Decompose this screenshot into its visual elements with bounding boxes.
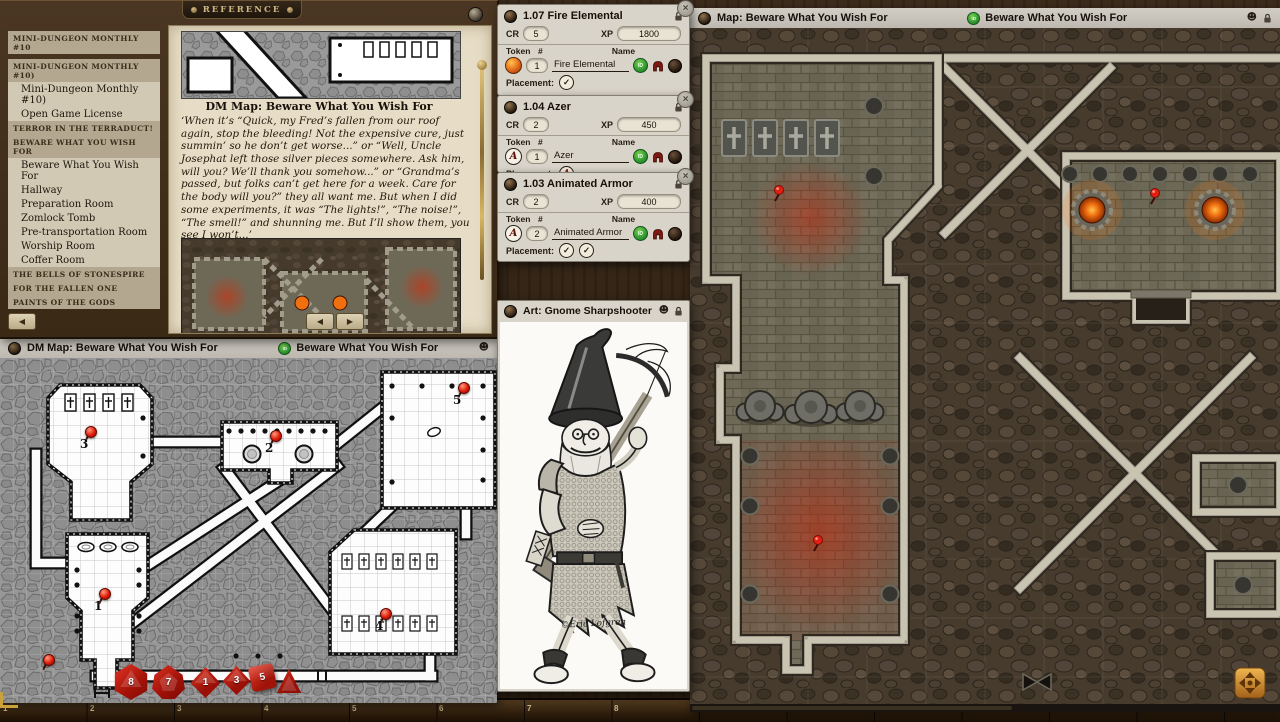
placement-check-icon[interactable]: ✓ (559, 243, 574, 258)
radial-menu-icon[interactable] (504, 10, 517, 23)
id-badge-icon: ID (278, 342, 291, 355)
player-map-shared-name: ID Beware What You Wish For (967, 12, 1127, 25)
radial-menu-icon[interactable] (8, 342, 21, 355)
npc-name-link[interactable]: Fire Elemental (552, 59, 629, 72)
close-icon[interactable]: × (677, 91, 694, 108)
player-map-canvas[interactable] (690, 28, 1280, 712)
close-icon[interactable]: × (677, 0, 694, 17)
token-column-header: Token (506, 46, 538, 56)
altar-statues (737, 391, 884, 427)
xp-field[interactable]: 450 (617, 117, 681, 132)
encounter-window-animated-armor: × 1.03 Animated Armor CR 2 XP 400 Token … (497, 172, 690, 262)
placement-label: Placement: (506, 246, 554, 256)
art-title: Art: Gnome Sharpshooter (523, 305, 652, 317)
player-view-icon[interactable]: ☻ (1247, 13, 1257, 23)
xp-label: XP (601, 120, 613, 130)
npc-name-link[interactable]: Azer (552, 150, 629, 163)
name-column-header: Name (566, 214, 681, 224)
window-knob-icon[interactable] (468, 7, 483, 22)
id-badge-icon[interactable]: ID (633, 58, 648, 73)
stud-icon (191, 7, 197, 13)
index-item[interactable]: Zomlock Tomb (8, 211, 160, 225)
cr-label: CR (506, 29, 519, 39)
index-header[interactable]: Paints of the Gods (8, 295, 160, 309)
radial-menu-icon[interactable] (504, 101, 517, 114)
cr-field[interactable]: 2 (523, 117, 549, 132)
cr-label: CR (506, 197, 519, 207)
placement-label: Placement: (506, 78, 554, 88)
pin-number: 1 (94, 599, 102, 613)
id-badge-icon[interactable]: ID (633, 149, 648, 164)
encounter-title: 1.07 Fire Elemental (523, 10, 623, 22)
art-window: Art: Gnome Sharpshooter ☻ (497, 300, 690, 692)
reference-index-list: Mini-Dungeon Monthly #10 Mini-Dungeon Mo… (8, 31, 160, 309)
id-badge-icon[interactable]: ID (633, 226, 648, 241)
hotkey-slot-label[interactable]: 8 (614, 704, 618, 713)
index-item[interactable]: Coffer Room (8, 253, 160, 267)
desktop-corner-ornament (0, 692, 18, 708)
pin-number: 4 (375, 619, 383, 633)
helmet-icon[interactable] (652, 60, 664, 72)
page-caption[interactable]: DM Map: Beware What You Wish For (169, 100, 469, 113)
d6-die[interactable]: 5 (248, 663, 278, 693)
xp-label: XP (601, 29, 613, 39)
stud-icon (287, 7, 293, 13)
reference-title-plaque[interactable]: REFERENCE (182, 1, 302, 19)
pin-head-icon (43, 654, 55, 666)
shared-name-label: Beware What You Wish For (985, 12, 1127, 24)
fire-elemental-token-icon[interactable] (505, 57, 522, 74)
index-header[interactable]: Beware What You Wish For (8, 135, 160, 158)
count-column-header: # (538, 137, 566, 147)
page-prev-button[interactable]: ◀ (306, 313, 334, 330)
count-field[interactable]: 1 (526, 58, 548, 73)
map-pan-control (1235, 668, 1265, 698)
art-titlebar[interactable]: Art: Gnome Sharpshooter ☻ (498, 301, 689, 321)
xp-field[interactable]: 400 (617, 194, 681, 209)
count-column-header: # (538, 214, 566, 224)
encounter-titlebar[interactable]: 1.07 Fire Elemental (498, 5, 689, 25)
armor-letter-token-icon[interactable]: A (505, 225, 522, 242)
index-item[interactable]: Mini-Dungeon Monthly #10) (8, 82, 160, 107)
hotkey-slot-label[interactable]: 6 (439, 704, 443, 713)
placement-check-icon[interactable]: ✓ (579, 243, 594, 258)
player-view-icon[interactable]: ☻ (659, 306, 669, 316)
count-field[interactable]: 1 (526, 149, 548, 164)
dm-map-title: DM Map: Beware What You Wish For (27, 342, 218, 354)
radial-menu-icon[interactable] (698, 12, 711, 25)
reference-window: REFERENCE Mini-Dungeon Monthly #10 Mini-… (0, 0, 499, 339)
xp-label: XP (601, 197, 613, 207)
page-scroll-rod[interactable] (480, 68, 484, 280)
cr-label: CR (506, 120, 519, 130)
token-column-header: Token (506, 214, 538, 224)
name-column-header: Name (566, 46, 681, 56)
page-body-text: ‘When it’s “Quick, my Fred’s fallen from… (181, 115, 473, 242)
azer-letter-token-icon[interactable]: A (505, 148, 522, 165)
player-map-title: Map: Beware What You Wish For (717, 12, 888, 24)
player-map-titlebar[interactable]: Map: Beware What You Wish For ID Beware … (690, 8, 1280, 29)
art-canvas[interactable]: ©Eric Lofgren (500, 322, 687, 689)
lock-icon[interactable] (1263, 13, 1272, 24)
encounter-titlebar[interactable]: 1.04 Azer (498, 96, 689, 116)
encounter-window-fire-elemental: × 1.07 Fire Elemental CR 5 XP 1800 Token… (497, 4, 690, 96)
token-orb-icon[interactable] (668, 150, 682, 164)
token-orb-icon[interactable] (668, 227, 682, 241)
name-column-header: Name (566, 137, 681, 147)
hotkey-slot-label[interactable]: 2 (90, 704, 94, 713)
hotkey-slot-label[interactable]: 3 (177, 704, 181, 713)
dm-map-window: DM Map: Beware What You Wish For ID Bewa… (0, 338, 497, 703)
dm-map-canvas[interactable] (0, 358, 497, 703)
dm-map-titlebar[interactable]: DM Map: Beware What You Wish For ID Bewa… (0, 338, 497, 359)
hotkey-slot-label[interactable]: 7 (527, 704, 531, 713)
index-header[interactable]: Mini-Dungeon Monthly #10) (8, 59, 160, 82)
index-header[interactable]: Terror in the Terraduct! (8, 121, 160, 135)
radial-menu-icon[interactable] (504, 305, 517, 318)
index-header[interactable]: Mini-Dungeon Monthly #10 (8, 31, 160, 54)
index-item[interactable]: Worship Room (8, 239, 160, 253)
radial-menu-icon[interactable] (504, 178, 517, 191)
fantasy-grounds-desktop: { "labels": {"cr": "CR", "xp": "XP", "to… (0, 0, 1280, 720)
index-item[interactable]: Preparation Room (8, 197, 160, 211)
pin-number: 3 (80, 437, 88, 451)
count-field[interactable]: 2 (526, 226, 548, 241)
index-item[interactable]: Hallway (8, 183, 160, 197)
reference-page: DM Map: Beware What You Wish For ‘When i… (168, 25, 492, 334)
encounter-title: 1.04 Azer (523, 101, 571, 113)
count-column-header: # (538, 46, 566, 56)
dm-map-shared-name: ID Beware What You Wish For (278, 342, 438, 355)
hotkey-slot-label[interactable]: 4 (264, 704, 268, 713)
encounter-titlebar[interactable]: 1.03 Animated Armor (498, 173, 689, 193)
pin-number: 5 (453, 393, 461, 407)
index-header[interactable]: The Bells of Stonespire (8, 267, 160, 281)
token-orb-icon[interactable] (668, 59, 682, 73)
hotkey-slot-label[interactable]: 5 (352, 704, 356, 713)
token-column-header: Token (506, 137, 538, 147)
cr-field[interactable]: 5 (523, 26, 549, 41)
id-badge-icon: ID (967, 12, 980, 25)
index-item[interactable]: Open Game License (8, 107, 160, 121)
reference-title: REFERENCE (203, 5, 282, 15)
encounter-window-azer: × 1.04 Azer CR 2 XP 450 Token # Name A 1… (497, 95, 690, 173)
player-map-window: Map: Beware What You Wish For ID Beware … (690, 8, 1280, 712)
gnome-illustration: ©Eric Lofgren (500, 322, 687, 688)
index-back-button[interactable]: ◀ (8, 313, 36, 330)
cr-field[interactable]: 2 (523, 194, 549, 209)
dm-map-thumbnail[interactable] (181, 31, 461, 99)
player-map-canvas-wrap[interactable] (690, 28, 1280, 712)
close-icon[interactable]: × (677, 168, 694, 185)
page-next-button[interactable]: ▶ (336, 313, 364, 330)
index-item[interactable]: Beware What You Wish For (8, 158, 160, 183)
player-view-icon[interactable]: ☻ (479, 343, 489, 353)
helmet-icon[interactable] (652, 151, 664, 163)
index-item[interactable]: Pre-transportation Room (8, 225, 160, 239)
shared-name-label: Beware What You Wish For (296, 342, 438, 354)
helmet-icon[interactable] (652, 228, 664, 240)
encounter-title: 1.03 Animated Armor (523, 178, 633, 190)
placement-check-icon[interactable]: ✓ (559, 75, 574, 90)
xp-field[interactable]: 1800 (617, 26, 681, 41)
npc-name-link[interactable]: Animated Armor (552, 227, 629, 240)
index-header[interactable]: For the Fallen One (8, 281, 160, 295)
pin-number: 2 (265, 441, 273, 455)
dm-map-canvas-wrap[interactable]: 1 2 3 4 5 8 7 1 3 5 (0, 358, 497, 703)
lock-icon[interactable] (674, 306, 683, 317)
